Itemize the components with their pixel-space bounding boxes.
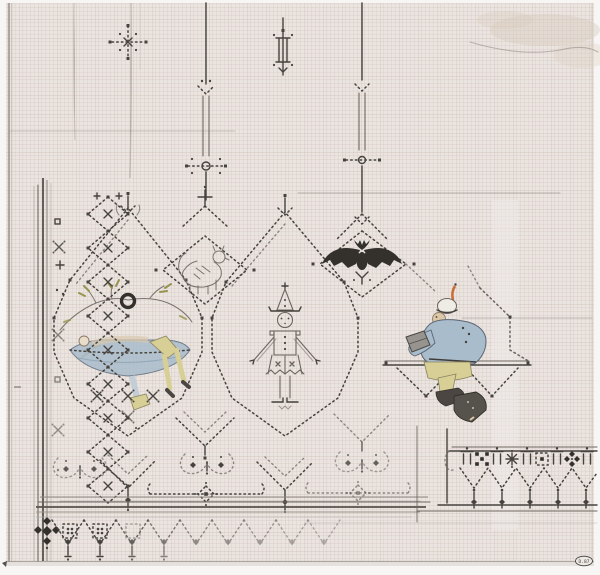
- collector-stamp: D.87: [576, 556, 593, 566]
- corner-speck: [2, 561, 7, 567]
- scanned-pattern-sheet: D.87: [0, 0, 600, 575]
- head: [79, 336, 89, 346]
- pattern-drawing: D.87: [0, 0, 600, 575]
- stamp-text: D.87: [578, 559, 589, 565]
